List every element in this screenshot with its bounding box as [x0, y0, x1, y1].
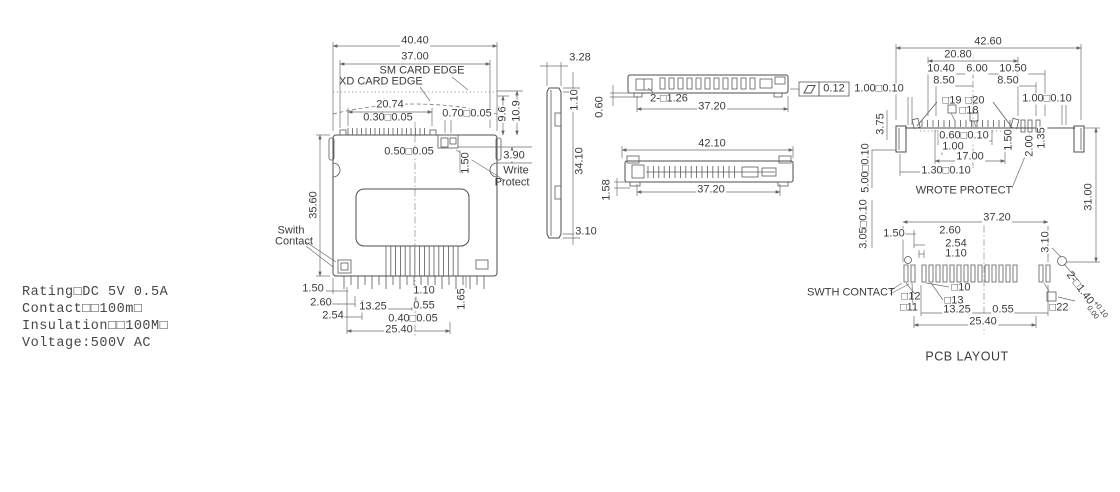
pcb-pad-22-label: □22: [1049, 303, 1070, 314]
front-dim-edge-height-xd: 10.9: [512, 99, 523, 122]
pcb-dim-10-50: 10.50: [998, 64, 1028, 75]
front-dim-2-60: 2.60: [309, 298, 332, 309]
front-dim-13-25: 13.25: [358, 302, 388, 313]
pcb-pad-10-label: □10: [951, 283, 972, 294]
pcb-dim-31-00: 31.00: [1084, 182, 1095, 212]
front-dim-pin-pitch-tol: 0.30□0.05: [362, 113, 413, 124]
pcb-dim-10-40: 10.40: [926, 64, 956, 75]
pcb-dim-3-75: 3.75: [876, 112, 887, 135]
front-dim-overall-width: 40.40: [400, 36, 430, 47]
engineering-drawing-canvas: Rating□DC 5V 0.5A Contact□□100m□ Insulat…: [0, 0, 1120, 492]
topB-dim-overall: 42.10: [697, 139, 727, 150]
front-switch-label-2: Contact: [274, 237, 314, 248]
pcb-dim-1-35: 1.35: [1037, 126, 1048, 149]
pcb-dim-8-50-left: 8.50: [932, 76, 955, 87]
front-dim-0-55: 0.55: [412, 301, 435, 312]
pcb-dim-17-00: 17.00: [955, 152, 985, 163]
pcb-dim-25-40: 25.40: [968, 317, 998, 328]
pcb-dim-1-50-mid: 1.50: [1004, 128, 1015, 151]
topA-flatness-tolerance: 0.12: [822, 84, 845, 95]
spec-contact: Contact□□100m□: [22, 301, 168, 318]
front-dim-body-height: 35.60: [309, 190, 320, 220]
pcb-swth-contact-label: SWTH CONTACT: [806, 288, 896, 299]
front-dim-pitch: 2.54: [321, 311, 344, 322]
front-dim-1-10: 1.10: [412, 286, 435, 297]
front-write-protect-label-2: Protect: [494, 178, 531, 189]
spec-rating: Rating□DC 5V 0.5A: [22, 284, 168, 301]
spec-voltage: Voltage:500V AC: [22, 335, 168, 352]
pcb-dim-3-05-tol: 3.05□0.10: [859, 198, 870, 249]
front-dim-wp-slot-tol: 0.70□0.05: [441, 109, 492, 120]
front-dim-wp-height: 3.90: [502, 151, 525, 162]
pcb-layout-caption: PCB LAYOUT: [924, 352, 1009, 363]
front-dim-bottom-span: 25.40: [384, 325, 414, 336]
pcb-dim-6-00: 6.00: [965, 64, 988, 75]
front-dim-pin-length: 1.65: [457, 287, 468, 310]
pcb-wrote-protect-label: WROTE PROTECT: [915, 186, 1014, 197]
pcb-dim-0-55: 0.55: [991, 305, 1014, 316]
topA-dim-foot-height: 0.60: [595, 95, 606, 118]
side-dim-top-step: 1.10: [570, 88, 581, 111]
front-dim-bottom-offset: 1.50: [301, 284, 324, 295]
pcb-dim-1-00-tol-right: 1.00□0.10: [1021, 94, 1072, 105]
side-dim-top-width: 3.28: [568, 53, 591, 64]
spec-insulation: Insulation□□100M□: [22, 318, 168, 335]
pcb-dim-5-00-tol: 5.00□0.10: [861, 142, 872, 193]
pcb-dim-20-80: 20.80: [943, 50, 973, 61]
top-view-a-geometry: [610, 75, 849, 112]
side-dim-bottom-step: 3.10: [574, 227, 597, 238]
front-dim-edge-height-sm: 9.6: [498, 105, 509, 122]
pcb-dim-1-30-tol: 1.30□0.10: [920, 166, 971, 177]
front-dim-pin-width-tol: 0.50□0.05: [383, 147, 434, 158]
flatness-symbol-icon: [804, 86, 815, 94]
pcb-dim-overall: 42.60: [973, 37, 1003, 48]
spec-block: Rating□DC 5V 0.5A Contact□□100m□ Insulat…: [22, 284, 168, 352]
topB-dim-span: 37.20: [696, 185, 726, 196]
side-dim-height: 34.10: [575, 146, 586, 176]
pcb-dim-8-50-right: 8.50: [996, 76, 1019, 87]
pcb-dim-2-00: 2.00: [1025, 134, 1036, 157]
topB-dim-foot: 1.58: [602, 178, 613, 201]
front-dim-wp-depth: 1.50: [461, 151, 472, 174]
pcb-pad-11-label: □11: [899, 303, 919, 314]
pcb-dim-1-00-tol-left: 1.00□0.10: [853, 84, 904, 95]
topA-dim-span: 37.20: [697, 102, 727, 113]
front-dim-body-width: 37.00: [400, 52, 430, 63]
pcb-dim-2-60: 2.60: [938, 226, 961, 237]
front-write-protect-label-1: Write: [502, 166, 529, 177]
front-dim-pin-span: 20.74: [375, 100, 405, 111]
pcb-dim-37-20: 37.20: [982, 213, 1012, 224]
pcb-dim-13-25: 13.25: [942, 305, 972, 316]
pcb-dim-1-50-left: 1.50: [882, 229, 905, 240]
topA-hole-note: 2-□1.26: [649, 94, 689, 105]
pcb-pad-18-label: □18: [959, 106, 980, 117]
pcb-dim-3-10: 3.10: [1041, 230, 1052, 253]
front-xd-card-edge-label: XD CARD EDGE: [338, 77, 424, 88]
pcb-dim-1-10: 1.10: [944, 249, 967, 260]
